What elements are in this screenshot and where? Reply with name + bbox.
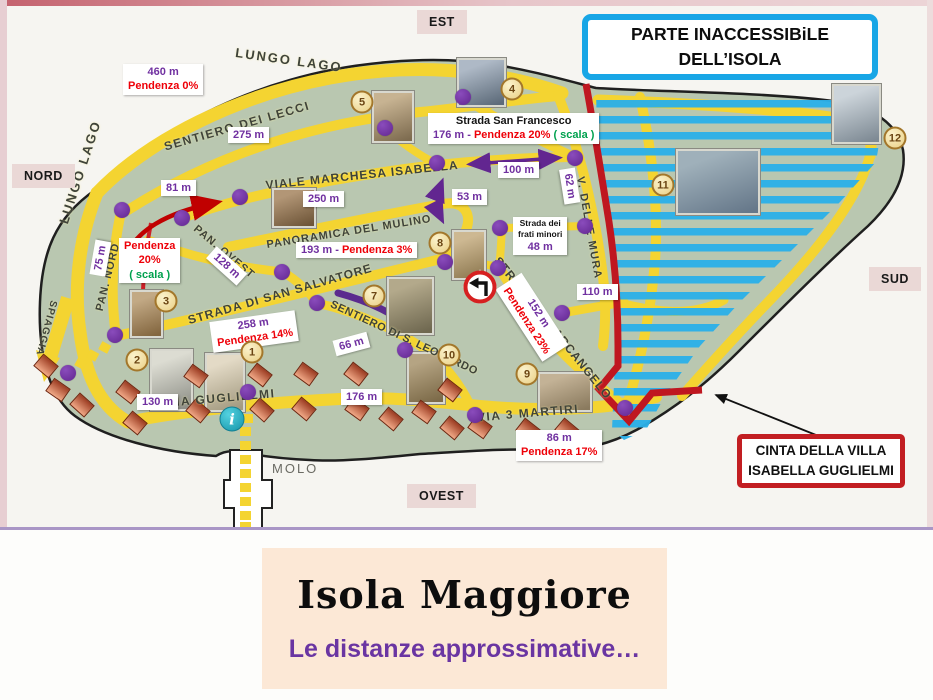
junction-dot bbox=[437, 254, 453, 270]
house-block bbox=[439, 415, 465, 440]
house-block bbox=[343, 362, 369, 387]
cinta-callout: CINTA DELLA VILLA ISABELLA GUGLIELMI bbox=[737, 434, 905, 488]
compass-nord: NORD bbox=[12, 164, 75, 188]
house-block bbox=[291, 396, 317, 421]
poi-marker-12: 12 bbox=[884, 127, 907, 150]
distance-label: Strada San Francesco176 m - Pendenza 20%… bbox=[428, 113, 599, 144]
house-block bbox=[33, 353, 59, 378]
inaccessible-callout-line1: PARTE INACCESSIBiLE bbox=[631, 22, 829, 47]
street-label-spiaggia: SPIAGGIA bbox=[33, 299, 58, 357]
junction-dot bbox=[232, 189, 248, 205]
junction-dot bbox=[467, 407, 483, 423]
info-icon: i bbox=[220, 407, 245, 432]
junction-dot bbox=[174, 210, 190, 226]
poi-marker-3: 3 bbox=[155, 290, 178, 313]
house-block bbox=[122, 410, 148, 435]
house-block bbox=[378, 406, 404, 431]
distance-label: Pendenza20%( scala ) bbox=[119, 238, 180, 283]
distance-label: 460 mPendenza 0% bbox=[123, 64, 203, 95]
poi-marker-9: 9 bbox=[516, 363, 539, 386]
junction-dot bbox=[240, 384, 256, 400]
distance-label: Strada deifrati minori48 m bbox=[513, 217, 567, 255]
page-title: Isola Maggiore bbox=[262, 572, 667, 617]
molo-label: MOLO bbox=[272, 461, 318, 476]
scan-edge-top bbox=[0, 0, 933, 6]
junction-dot bbox=[377, 120, 393, 136]
junction-dot bbox=[274, 264, 290, 280]
distance-label: 130 m bbox=[137, 394, 178, 410]
cinta-callout-line1: CINTA DELLA VILLA bbox=[756, 441, 887, 461]
street-label-sentiero-dei-lecci: SENTIERO DEI LECCI bbox=[162, 98, 311, 153]
junction-dot bbox=[60, 365, 76, 381]
distance-label: 86 mPendenza 17% bbox=[516, 430, 602, 461]
street-label-lungo-lago: LUNGO LAGO bbox=[234, 45, 343, 75]
house-block bbox=[293, 362, 319, 387]
compass-sud: SUD bbox=[869, 267, 921, 291]
distance-label: 176 m bbox=[341, 389, 382, 405]
junction-dot bbox=[397, 342, 413, 358]
slide-divider bbox=[0, 527, 933, 530]
poi-marker-1: 1 bbox=[241, 341, 264, 364]
photo-village-11 bbox=[676, 149, 760, 215]
cinta-callout-line2: ISABELLA GUGLIELMI bbox=[748, 461, 894, 481]
poi-marker-2: 2 bbox=[126, 349, 149, 372]
inaccessible-callout: PARTE INACCESSIBiLE DELL’ISOLA bbox=[582, 14, 878, 80]
junction-dot bbox=[455, 89, 471, 105]
poi-marker-5: 5 bbox=[351, 91, 374, 114]
compass-est: EST bbox=[417, 10, 467, 34]
photo-tower-12 bbox=[832, 84, 881, 144]
junction-dot bbox=[617, 400, 633, 416]
poi-marker-8: 8 bbox=[429, 232, 452, 255]
distance-label: 250 m bbox=[303, 191, 344, 207]
distance-label: 193 m - Pendenza 3% bbox=[296, 242, 417, 258]
compass-ovest: OVEST bbox=[407, 484, 476, 508]
photo-chapel-5 bbox=[372, 91, 414, 143]
no-turn-sign-icon bbox=[458, 265, 502, 309]
junction-dot bbox=[492, 220, 508, 236]
distance-label: 66 m bbox=[332, 332, 370, 357]
poi-marker-10: 10 bbox=[438, 344, 461, 367]
distance-label: 53 m bbox=[452, 189, 487, 205]
distance-label: 110 m bbox=[577, 284, 618, 300]
junction-dot bbox=[114, 202, 130, 218]
house-block bbox=[45, 378, 71, 403]
distance-label: 275 m bbox=[228, 127, 269, 143]
island-map: LUNGO LAGOLUNGO LAGOSENTIERO DEI LECCIVI… bbox=[0, 0, 933, 527]
junction-dot bbox=[554, 305, 570, 321]
scan-edge-left bbox=[0, 0, 7, 527]
info-icon-letter: i bbox=[229, 410, 235, 428]
junction-dot bbox=[577, 218, 593, 234]
inaccessible-callout-line2: DELL’ISOLA bbox=[678, 47, 781, 72]
poi-marker-4: 4 bbox=[501, 78, 524, 101]
junction-dot bbox=[567, 150, 583, 166]
house-block bbox=[69, 392, 95, 417]
poi-marker-11: 11 bbox=[652, 174, 675, 197]
poi-marker-7: 7 bbox=[363, 285, 386, 308]
distance-label: 62 m bbox=[559, 168, 581, 205]
distance-label: 100 m bbox=[498, 162, 539, 178]
junction-dot bbox=[429, 155, 445, 171]
page-subtitle: Le distanze approssimative… bbox=[262, 635, 667, 664]
junction-dot bbox=[309, 295, 325, 311]
distance-label: 81 m bbox=[161, 180, 196, 196]
title-panel: Isola Maggiore Le distanze approssimativ… bbox=[262, 548, 667, 689]
scan-edge-right bbox=[927, 0, 933, 527]
junction-dot bbox=[107, 327, 123, 343]
